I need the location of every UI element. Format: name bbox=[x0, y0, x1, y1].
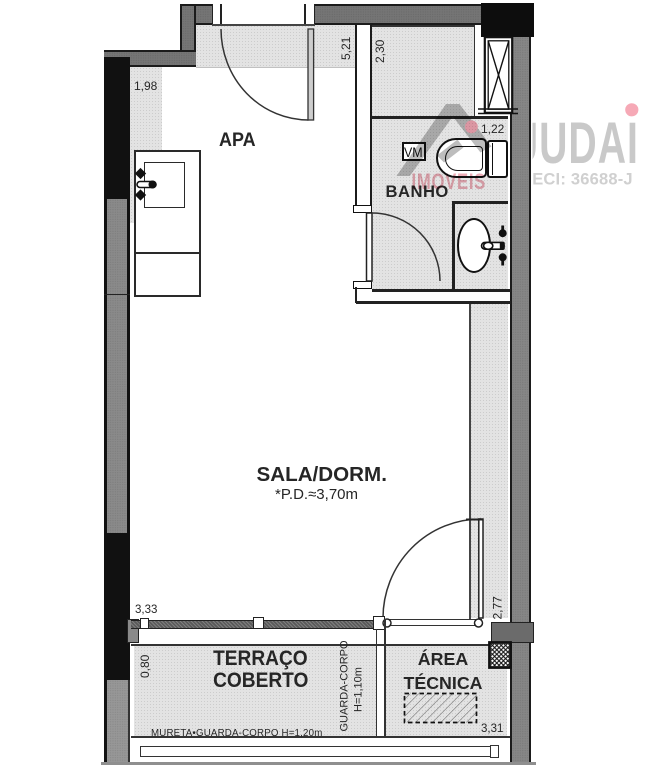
svg-text:UUDAI: UUDAI bbox=[510, 110, 639, 176]
svg-text:IMOVEIS: IMOVEIS bbox=[412, 170, 487, 195]
svg-text:CRECI: 36688-J: CRECI: 36688-J bbox=[508, 171, 633, 189]
